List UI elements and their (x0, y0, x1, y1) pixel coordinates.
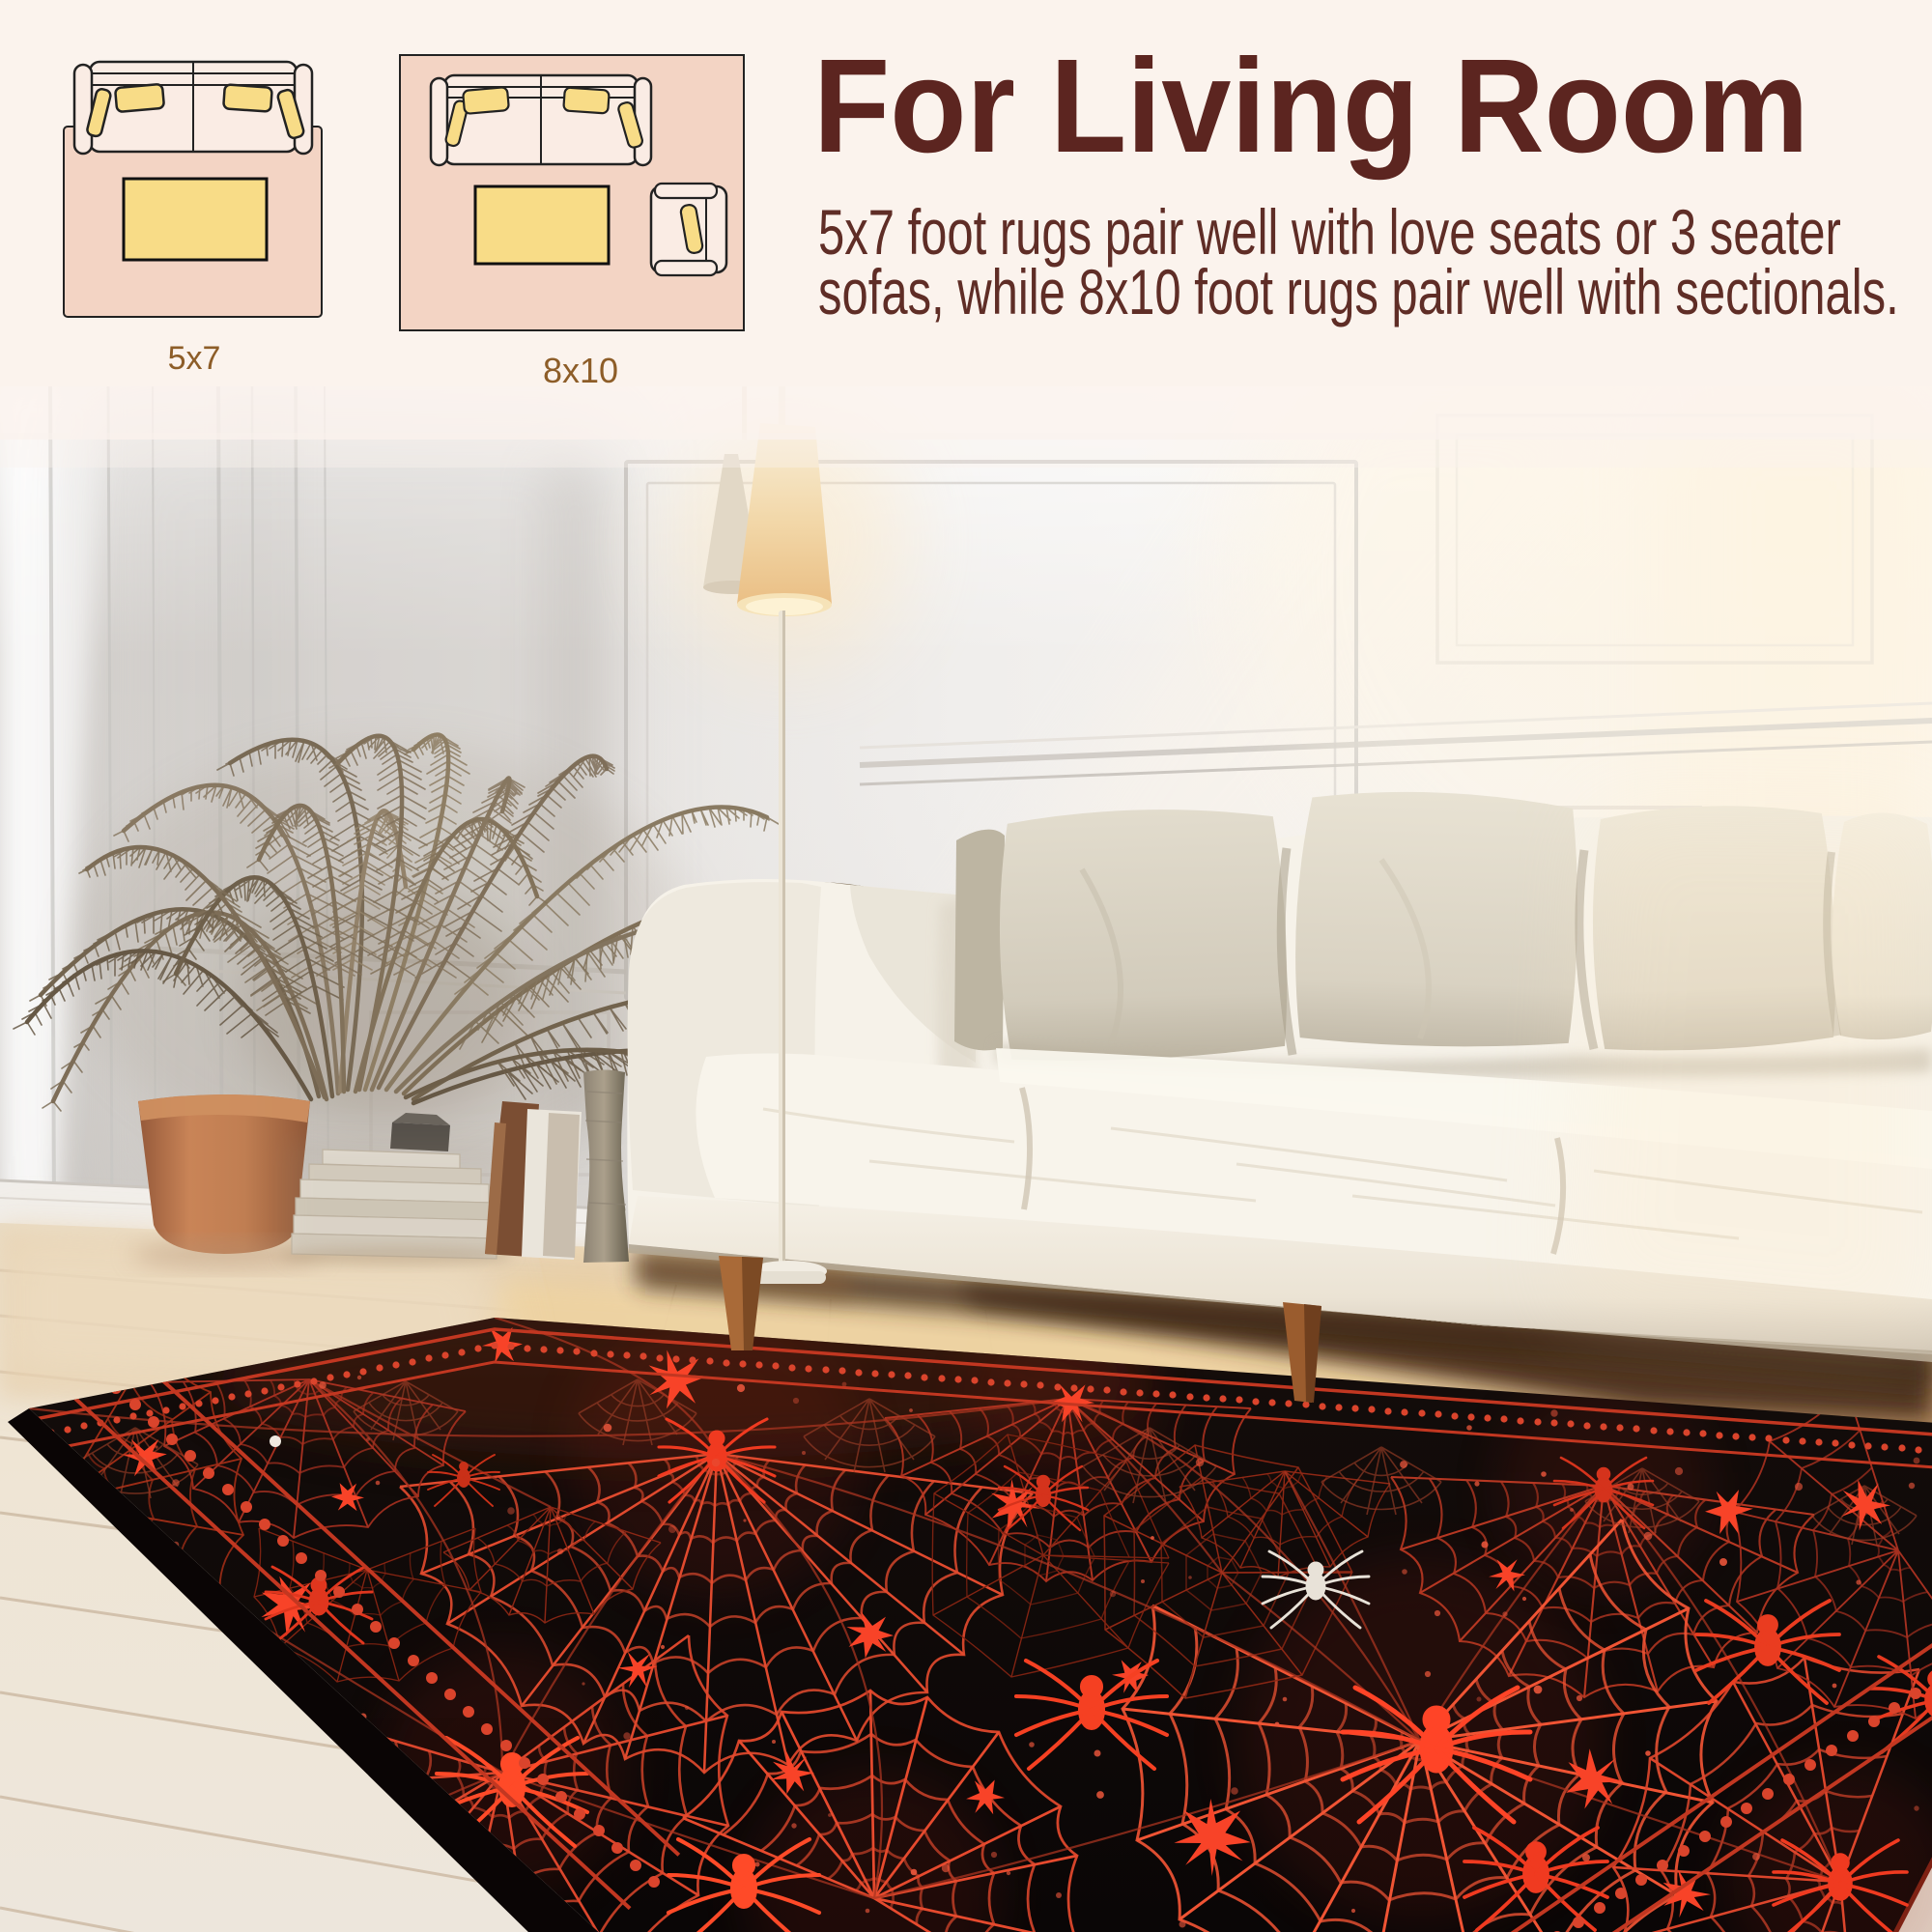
svg-text:5x7: 5x7 (168, 340, 221, 377)
svg-text:8x10: 8x10 (543, 351, 618, 390)
